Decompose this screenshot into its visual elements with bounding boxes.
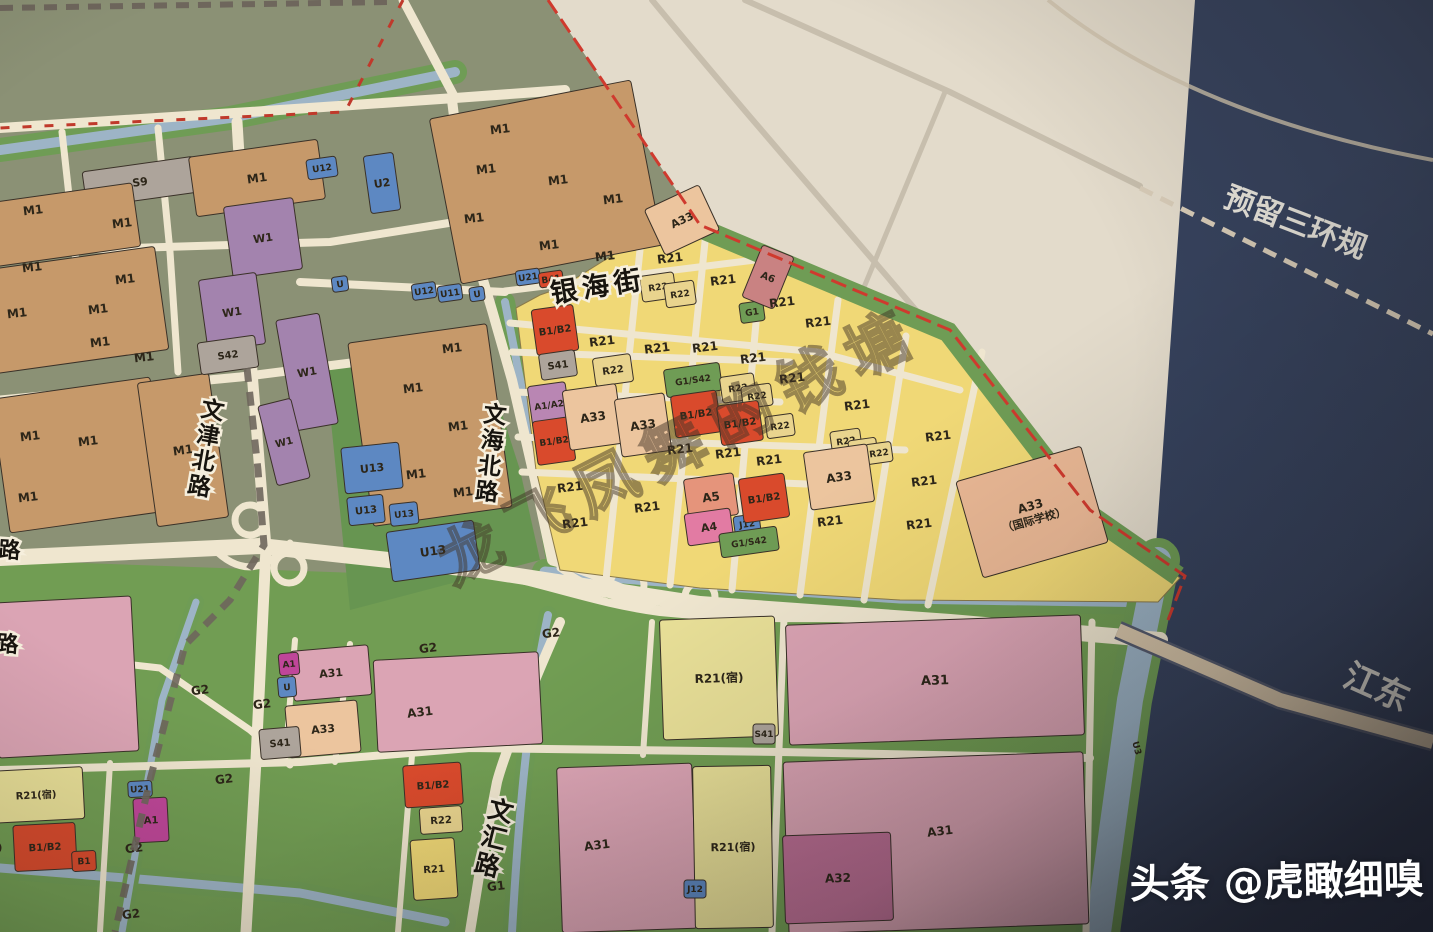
photo-watermark: 头条 @虎瞰细嗅 [1129,857,1424,908]
planning-map-photo: S9M1M1M1M1M1M1M1M1M1M1M1M1M1W1W1S42W1W1U… [0,0,1433,932]
map-canvas: S9M1M1M1M1M1M1M1M1M1M1M1M1M1W1W1S42W1W1U… [0,0,1433,932]
vignette [0,0,1433,932]
